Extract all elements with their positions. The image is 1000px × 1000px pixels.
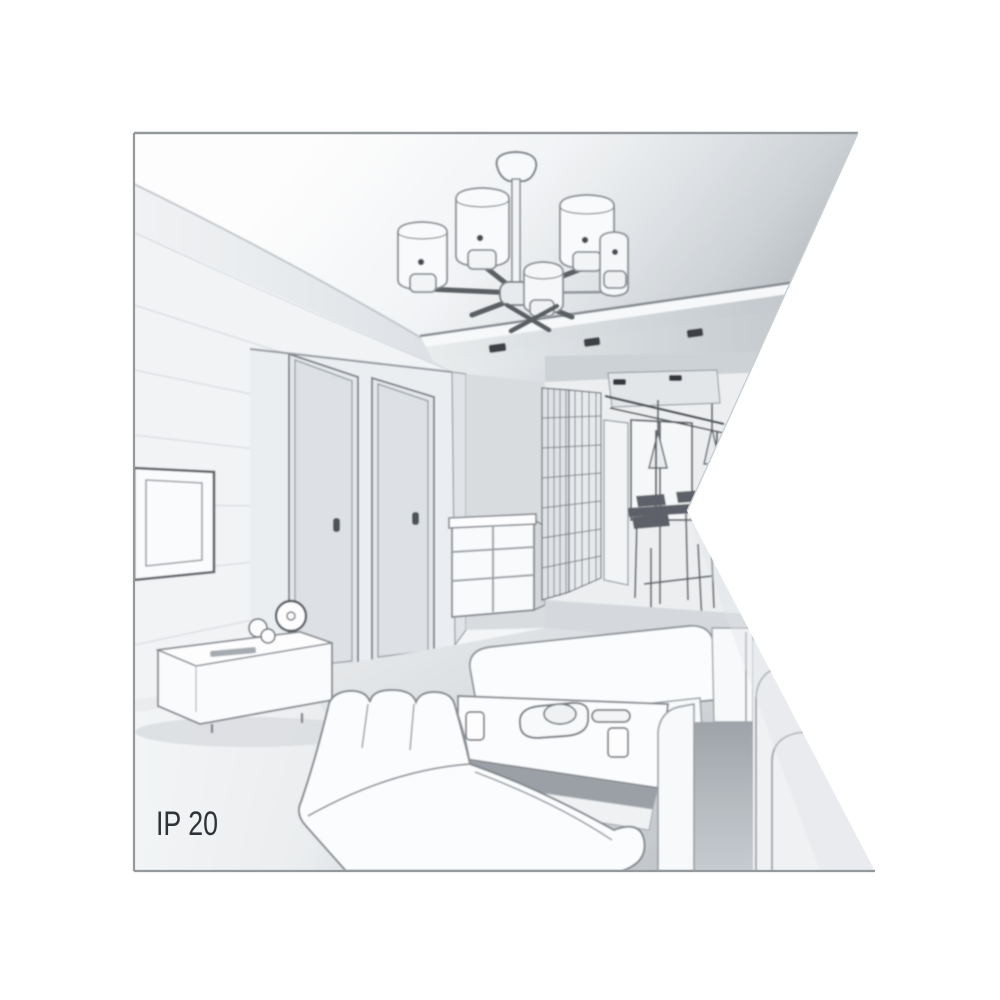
svg-text:IP 20: IP 20	[156, 805, 218, 843]
